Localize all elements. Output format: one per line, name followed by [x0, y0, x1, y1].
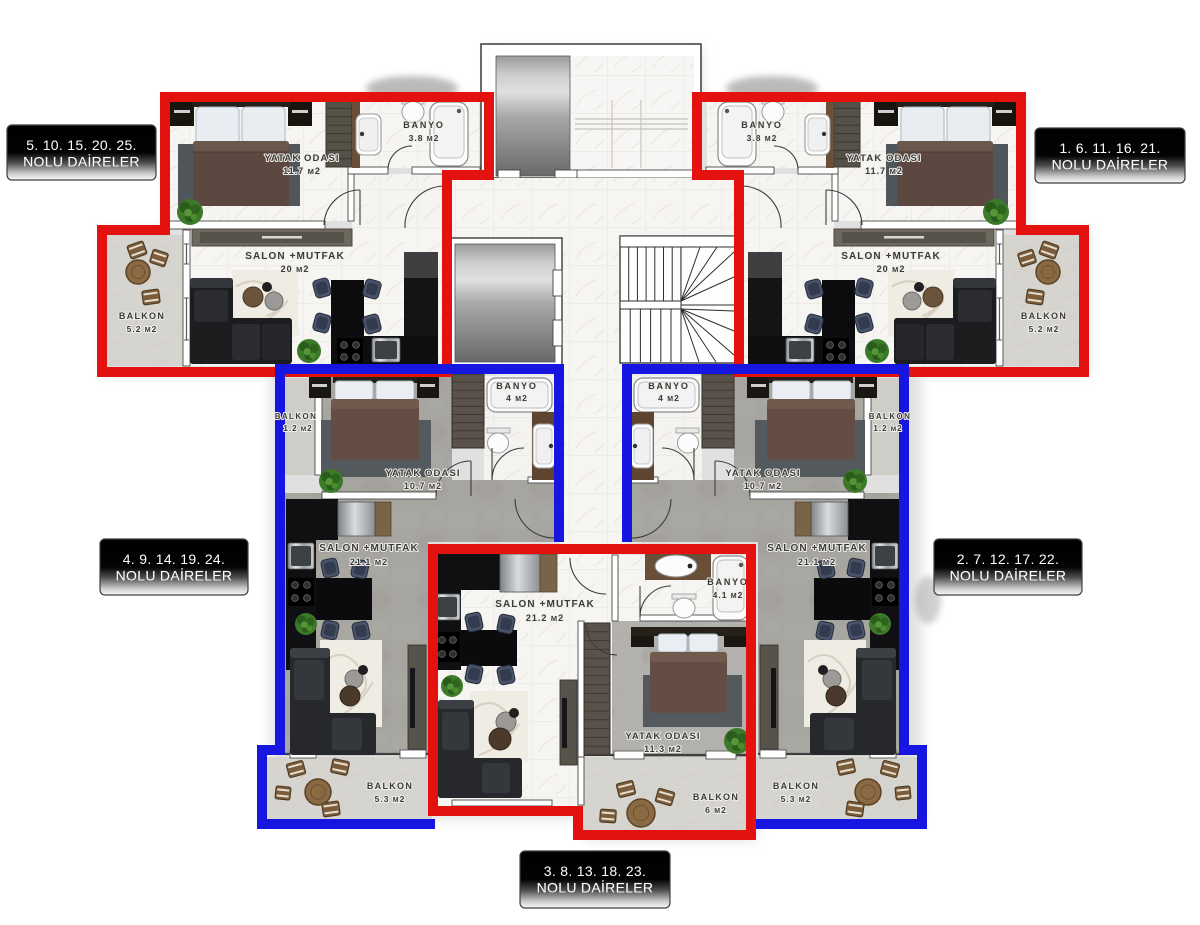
svg-text:SALON +MUTFAK: SALON +MUTFAK [841, 251, 941, 262]
svg-text:BALKON: BALKON [773, 781, 819, 791]
svg-text:11.7 M2: 11.7 M2 [283, 166, 321, 176]
svg-text:3.8 M2: 3.8 M2 [409, 133, 440, 143]
svg-text:1. 6. 11. 16. 21.: 1. 6. 11. 16. 21. [1059, 140, 1160, 156]
svg-text:SALON +MUTFAK: SALON +MUTFAK [495, 599, 595, 610]
svg-text:YATAK ODASI: YATAK ODASI [385, 468, 460, 479]
svg-text:YATAK ODASI: YATAK ODASI [625, 731, 700, 742]
svg-text:2. 7. 12. 17. 22.: 2. 7. 12. 17. 22. [957, 551, 1059, 567]
svg-text:4.1 M2: 4.1 M2 [713, 590, 744, 600]
svg-text:1.2 M2: 1.2 M2 [283, 424, 312, 433]
svg-text:5.2 M2: 5.2 M2 [127, 324, 158, 334]
svg-text:21.2 M2: 21.2 M2 [526, 613, 564, 623]
svg-text:21.1 M2: 21.1 M2 [350, 557, 388, 567]
svg-text:BANYO: BANYO [741, 120, 783, 130]
svg-text:1.2 M2: 1.2 M2 [873, 424, 902, 433]
svg-text:BALKON: BALKON [275, 412, 318, 421]
svg-text:YATAK ODASI: YATAK ODASI [264, 153, 339, 164]
svg-text:5.3 M2: 5.3 M2 [375, 794, 406, 804]
svg-text:BANYO: BANYO [707, 577, 749, 587]
svg-text:YATAK ODASI: YATAK ODASI [846, 153, 921, 164]
svg-text:BANYO: BANYO [403, 120, 445, 130]
svg-text:10.7 M2: 10.7 M2 [404, 481, 442, 491]
svg-text:10.7 M2: 10.7 M2 [744, 481, 782, 491]
svg-text:20 M2: 20 M2 [281, 264, 310, 274]
svg-text:SALON +MUTFAK: SALON +MUTFAK [245, 251, 345, 262]
svg-text:NOLU DAİRELER: NOLU DAİRELER [950, 567, 1067, 584]
svg-text:5.3 M2: 5.3 M2 [781, 794, 812, 804]
svg-text:YATAK ODASI: YATAK ODASI [725, 468, 800, 479]
svg-text:BALKON: BALKON [1021, 311, 1067, 321]
svg-text:5.2 M2: 5.2 M2 [1029, 324, 1060, 334]
svg-text:BANYO: BANYO [496, 381, 538, 391]
svg-text:BALKON: BALKON [119, 311, 165, 321]
svg-text:3.8 M2: 3.8 M2 [747, 133, 778, 143]
svg-text:NOLU DAİRELER: NOLU DAİRELER [23, 153, 140, 170]
svg-text:21.1 M2: 21.1 M2 [798, 557, 836, 567]
svg-text:NOLU DAİRELER: NOLU DAİRELER [537, 879, 654, 896]
svg-text:NOLU DAİRELER: NOLU DAİRELER [116, 567, 233, 584]
svg-text:3. 8. 13. 18. 23.: 3. 8. 13. 18. 23. [544, 863, 646, 879]
svg-text:5. 10. 15. 20. 25.: 5. 10. 15. 20. 25. [26, 137, 136, 153]
svg-text:BANYO: BANYO [648, 381, 690, 391]
svg-text:NOLU DAİRELER: NOLU DAİRELER [1052, 156, 1169, 173]
svg-text:BALKON: BALKON [869, 412, 912, 421]
svg-text:11.7 M2: 11.7 M2 [865, 166, 903, 176]
svg-text:BALKON: BALKON [693, 792, 739, 802]
svg-text:4. 9. 14. 19. 24.: 4. 9. 14. 19. 24. [123, 551, 225, 567]
svg-text:SALON +MUTFAK: SALON +MUTFAK [767, 543, 867, 554]
svg-text:SALON +MUTFAK: SALON +MUTFAK [319, 543, 419, 554]
svg-text:BALKON: BALKON [367, 781, 413, 791]
svg-text:11.3 M2: 11.3 M2 [644, 744, 682, 754]
svg-text:20 M2: 20 M2 [877, 264, 906, 274]
